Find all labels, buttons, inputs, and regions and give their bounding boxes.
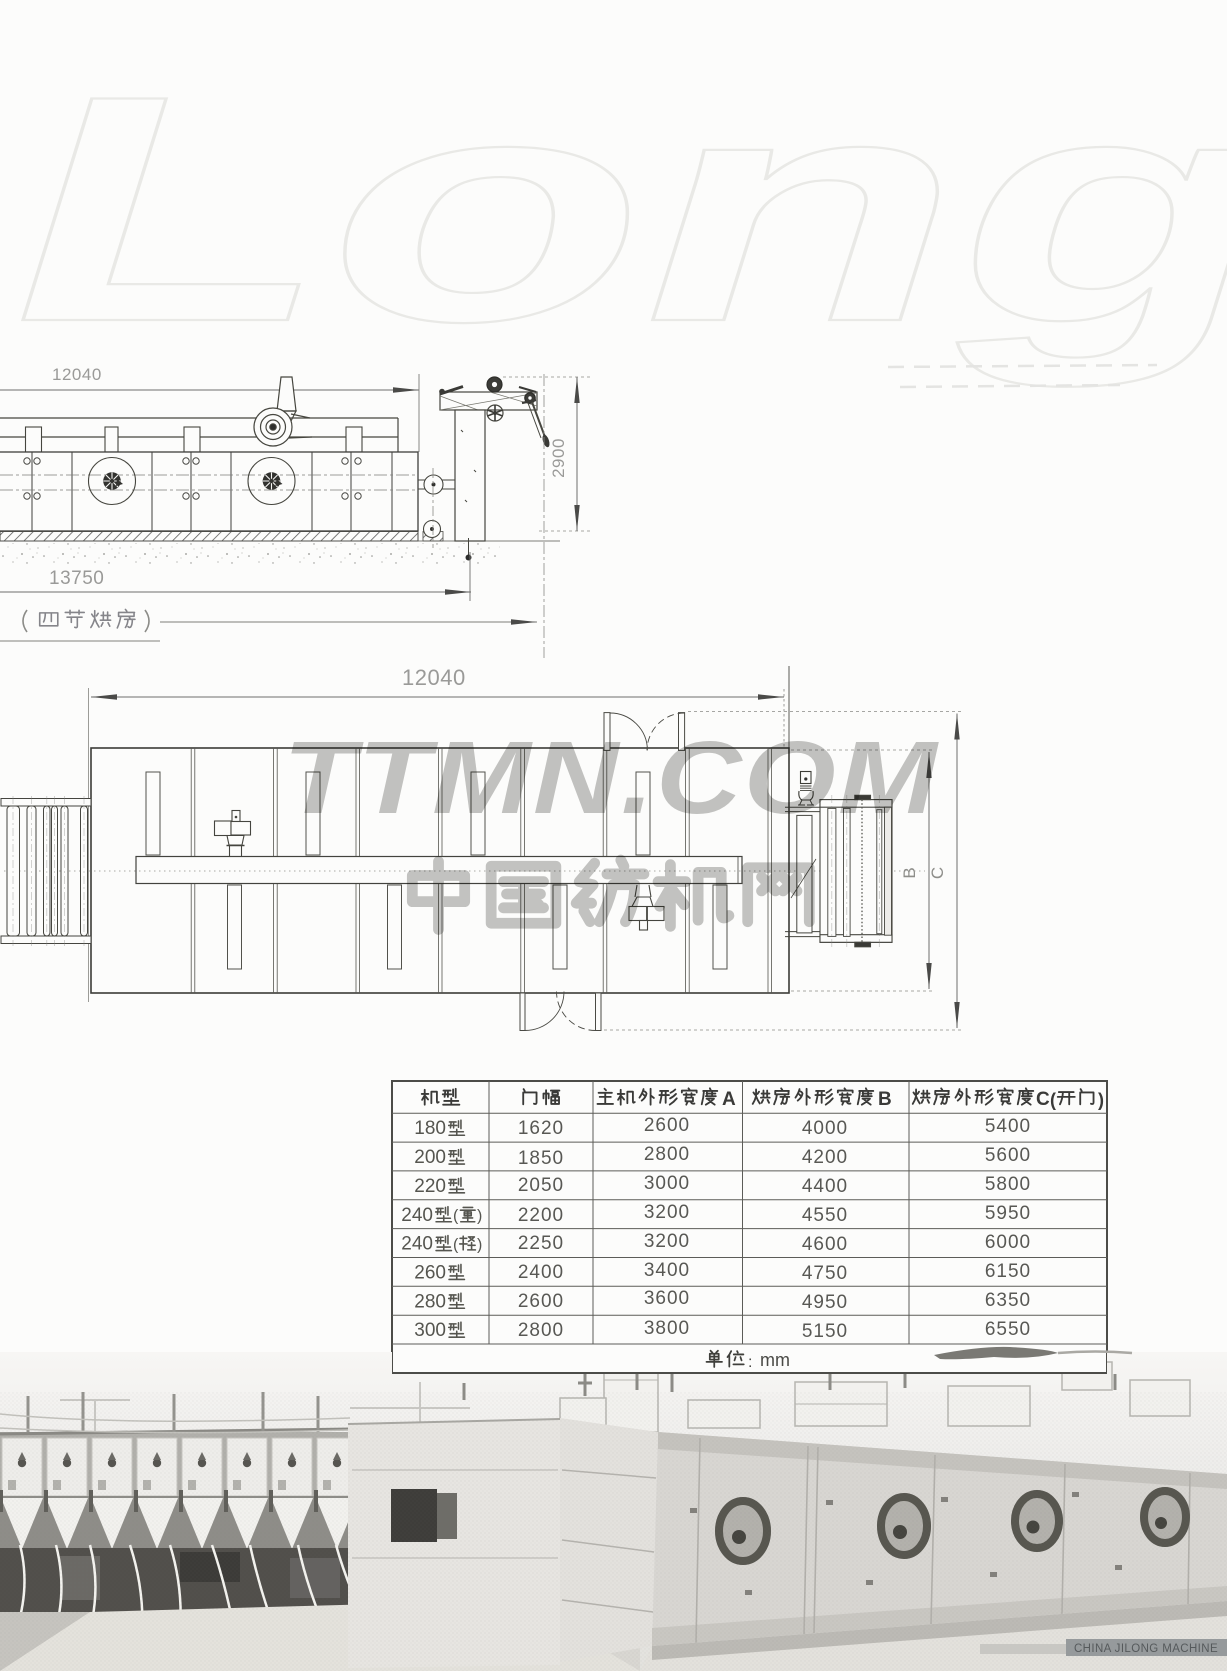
svg-text:2250: 2250 — [518, 1233, 564, 1254]
svg-text:1620: 1620 — [518, 1118, 564, 1139]
svg-text:4600: 4600 — [802, 1234, 848, 1255]
svg-text:5800: 5800 — [985, 1174, 1031, 1195]
svg-text:3200: 3200 — [644, 1231, 690, 1252]
svg-text:12040: 12040 — [52, 365, 102, 384]
svg-text:): ) — [477, 1208, 482, 1225]
svg-text:3000: 3000 — [644, 1173, 690, 1194]
svg-text:4950: 4950 — [802, 1292, 848, 1313]
svg-text:2400: 2400 — [518, 1262, 564, 1283]
svg-text:6350: 6350 — [985, 1290, 1031, 1311]
svg-text:3800: 3800 — [644, 1318, 690, 1339]
svg-text:6000: 6000 — [985, 1232, 1031, 1253]
svg-text:280: 280 — [414, 1291, 446, 1312]
svg-text:2600: 2600 — [644, 1115, 690, 1136]
svg-text:5950: 5950 — [985, 1203, 1031, 1224]
svg-text:(: ( — [453, 1236, 459, 1253]
svg-text:CHINA JILONG MACHINE: CHINA JILONG MACHINE — [1074, 1643, 1218, 1655]
svg-text:B: B — [878, 1089, 892, 1110]
svg-text:5150: 5150 — [802, 1321, 848, 1342]
svg-text:2900: 2900 — [549, 438, 568, 478]
svg-text:4750: 4750 — [802, 1263, 848, 1284]
svg-text:3600: 3600 — [644, 1288, 690, 1309]
svg-text:13750: 13750 — [49, 568, 104, 589]
svg-text:(: ( — [453, 1208, 459, 1225]
svg-text:4400: 4400 — [802, 1176, 848, 1197]
svg-text:Long: Long — [14, 30, 1227, 390]
svg-text:B: B — [900, 867, 919, 878]
svg-text:6150: 6150 — [985, 1261, 1031, 1282]
svg-text:2600: 2600 — [518, 1291, 564, 1312]
svg-text:2800: 2800 — [518, 1320, 564, 1341]
svg-text:(: ( — [1050, 1090, 1056, 1110]
svg-text:4200: 4200 — [802, 1147, 848, 1168]
svg-text:C: C — [1036, 1089, 1050, 1110]
svg-text:3400: 3400 — [644, 1260, 690, 1281]
svg-text:6550: 6550 — [985, 1319, 1031, 1340]
svg-text:1850: 1850 — [518, 1148, 564, 1169]
svg-text::: : — [748, 1354, 752, 1371]
svg-text:): ) — [477, 1236, 482, 1253]
svg-text:A: A — [722, 1089, 736, 1110]
svg-text:5400: 5400 — [985, 1116, 1031, 1137]
svg-text:4550: 4550 — [802, 1205, 848, 1226]
svg-text:240: 240 — [401, 1234, 433, 1255]
svg-text:200: 200 — [414, 1147, 446, 1168]
svg-text:5600: 5600 — [985, 1145, 1031, 1166]
svg-text:220: 220 — [414, 1176, 446, 1197]
svg-text:mm: mm — [760, 1350, 790, 1370]
svg-text:TTMN.COM: TTMN.COM — [283, 720, 939, 835]
svg-text:2050: 2050 — [518, 1175, 564, 1196]
svg-text:240: 240 — [401, 1205, 433, 1226]
svg-text:4000: 4000 — [802, 1118, 848, 1139]
svg-text:): ) — [1098, 1090, 1104, 1110]
svg-text:300: 300 — [414, 1320, 446, 1341]
svg-text:2200: 2200 — [518, 1205, 564, 1226]
svg-text:C: C — [928, 867, 947, 879]
svg-text:2800: 2800 — [644, 1144, 690, 1165]
svg-text:3200: 3200 — [644, 1202, 690, 1223]
svg-text:12040: 12040 — [402, 665, 466, 690]
svg-text:260: 260 — [414, 1262, 446, 1283]
svg-text:180: 180 — [414, 1118, 446, 1139]
